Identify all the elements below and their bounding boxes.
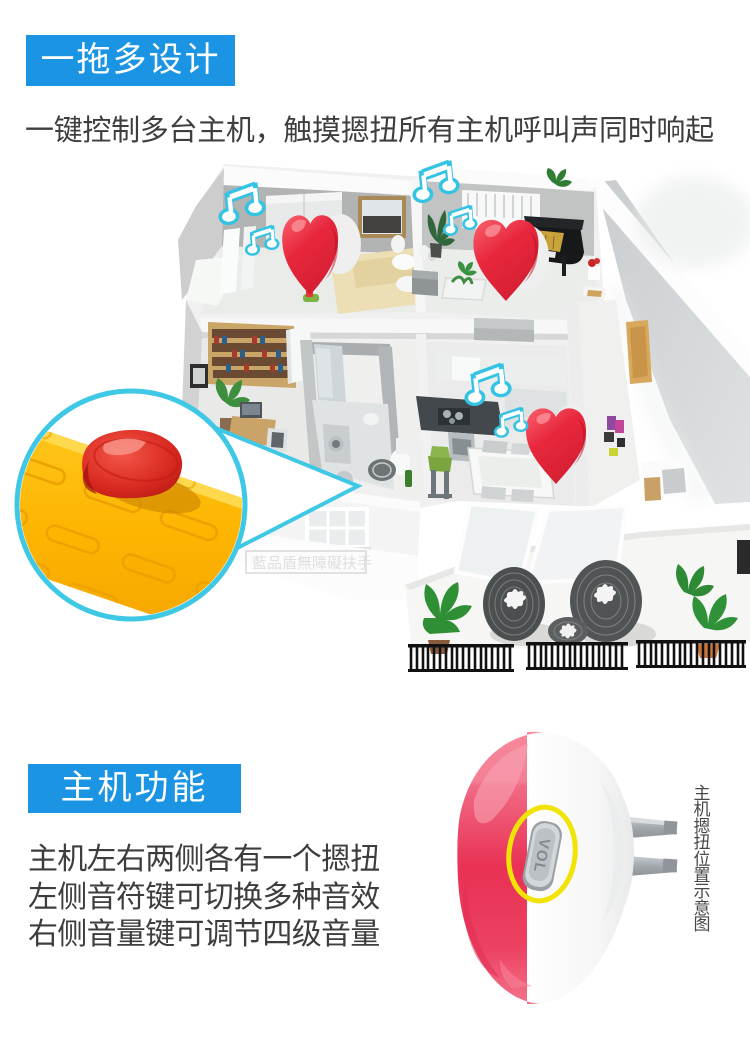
svg-text:藍品盾無障礙扶手: 藍品盾無障礙扶手 bbox=[252, 554, 372, 572]
